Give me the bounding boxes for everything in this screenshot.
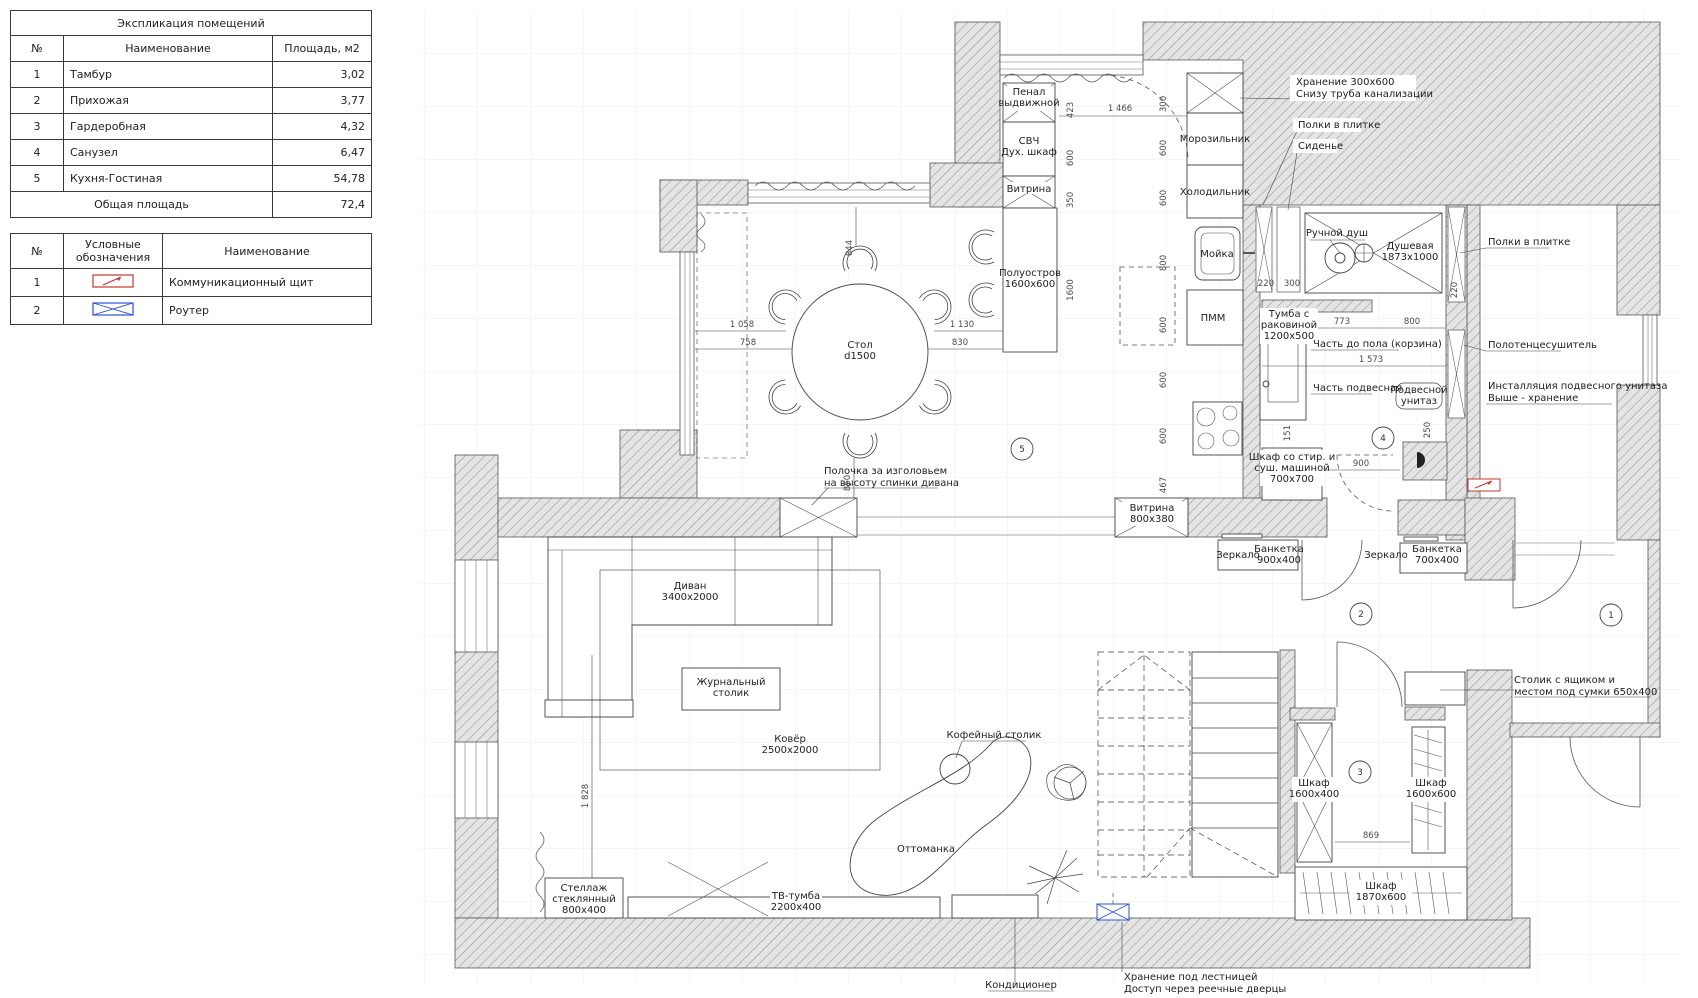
- label-coffee-table: Кофейный столик: [947, 730, 1042, 741]
- label-bench-900: 900х400: [1257, 555, 1301, 566]
- label-entry-table: Столик с ящиком и: [1514, 675, 1615, 686]
- label-microwave: СВЧ: [1019, 136, 1040, 147]
- dim: 800: [1404, 317, 1420, 327]
- label-wardrobe-1600x400: 1600х400: [1289, 789, 1339, 800]
- label-wardrobe-1870: Шкаф: [1365, 881, 1396, 892]
- wall-bottom: [455, 918, 1530, 968]
- label-pullout: выдвижной: [998, 98, 1059, 109]
- label-dining-table: Стол: [847, 340, 872, 351]
- label-ottoman: Оттоманка: [897, 844, 955, 855]
- dim: 151: [1283, 425, 1293, 441]
- wall: [1510, 723, 1660, 737]
- dim: 467: [1159, 477, 1169, 493]
- room-number: 1: [1608, 611, 1614, 621]
- dim: 220: [1258, 279, 1274, 289]
- label-shower: 1873х1000: [1382, 252, 1439, 263]
- label-rug: 2500х2000: [762, 745, 819, 756]
- dim: 900: [1353, 459, 1369, 469]
- dim: 758: [740, 338, 756, 348]
- drain: [1325, 243, 1355, 273]
- label-vitrina-small: Витрина: [1007, 184, 1052, 195]
- dim: 800: [1159, 255, 1169, 271]
- label-mirror: Зеркало: [1364, 550, 1408, 561]
- room-number: 4: [1380, 434, 1386, 444]
- label-bench-700: Банкетка: [1412, 544, 1462, 555]
- label-tile-shelves-top: Полки в плитке: [1298, 120, 1380, 131]
- wall: [1290, 708, 1335, 720]
- sofa-armrest: [545, 700, 633, 717]
- wall: [498, 498, 780, 537]
- label-understairs: Доступ через реечные дверцы: [1124, 984, 1286, 995]
- mirror-symbol: [1222, 534, 1262, 538]
- dim: 1600: [1066, 279, 1076, 301]
- dim: 773: [1334, 317, 1350, 327]
- wall: [1648, 540, 1660, 737]
- floor-plan-drawing: 5 2 1 3 4 Пенал выдвижной СВЧ Дух. шкаф …: [0, 0, 1698, 998]
- label-part-hung: Часть подвесная: [1313, 383, 1402, 394]
- label-installation: Инсталляция подвесного унитаза: [1488, 381, 1667, 392]
- label-journal-table: Журнальный: [697, 677, 766, 688]
- label-vanity: 1200х500: [1264, 331, 1314, 342]
- label-freezer: Морозильник: [1180, 134, 1250, 145]
- label-vanity: Тумба с: [1268, 309, 1310, 320]
- label-journal-table: столик: [713, 688, 749, 699]
- window: [680, 252, 694, 455]
- dim: 600: [1159, 140, 1169, 156]
- label-vanity: раковиной: [1261, 320, 1317, 331]
- dim: 220: [1450, 282, 1460, 298]
- wall: [1617, 205, 1660, 315]
- label-bench-700: 700х400: [1415, 555, 1459, 566]
- wall: [1403, 442, 1447, 480]
- label-fridge: Холодильник: [1180, 187, 1250, 198]
- wall: [1617, 385, 1660, 540]
- dim: 1 828: [581, 784, 591, 808]
- label-rug: Ковёр: [774, 734, 806, 745]
- wall: [660, 180, 697, 252]
- window: [1000, 55, 1143, 75]
- label-wardrobe-1600x600: Шкаф: [1415, 778, 1446, 789]
- dim: 250: [1423, 422, 1433, 438]
- label-entry-table: местом под сумки 650х400: [1514, 687, 1657, 698]
- label-storage300: Снизу труба канализации: [1296, 89, 1433, 100]
- label-tv-stand: 2200х400: [771, 902, 821, 913]
- label-tv-stand: ТВ-тумба: [771, 891, 820, 902]
- dim: 869: [1363, 831, 1379, 841]
- kitchen-cabinets: [1003, 83, 1057, 352]
- dim: 600: [1159, 428, 1169, 444]
- dim: 600: [1159, 372, 1169, 388]
- label-wc: Подвесной: [1390, 385, 1447, 396]
- room-number: 3: [1357, 768, 1363, 778]
- dim: 600: [1159, 317, 1169, 333]
- room-number: 2: [1358, 610, 1364, 620]
- label-dishwasher: ПММ: [1201, 313, 1226, 324]
- dim: 1 058: [730, 320, 754, 330]
- label-washer: суш. машиной: [1254, 463, 1329, 474]
- label-glass-shelf: Стеллаж: [561, 883, 608, 894]
- dim: 423: [1066, 102, 1076, 118]
- label-bench-900: Банкетка: [1254, 544, 1304, 555]
- dim: 300: [1159, 96, 1169, 112]
- comm-panel-icon: [1468, 479, 1500, 491]
- label-glass-shelf: стеклянный: [552, 894, 615, 905]
- label-glass-shelf: 800х400: [562, 905, 606, 916]
- dim: 300: [1284, 279, 1300, 289]
- label-dining-table: d1500: [844, 351, 876, 362]
- label-sofa: 3400х2000: [662, 592, 719, 603]
- mirror-symbol: [1404, 537, 1438, 541]
- wall: [930, 163, 1003, 207]
- wall: [1280, 650, 1295, 873]
- label-understairs: Хранение под лестницей: [1124, 972, 1258, 983]
- label-seat: Сиденье: [1298, 141, 1343, 152]
- label-storage300: Хранение 300х600: [1296, 77, 1394, 88]
- label-wardrobe-1870: 1870х600: [1356, 892, 1406, 903]
- dim: 830: [952, 338, 968, 348]
- label-hand-shower: Ручной душ: [1306, 228, 1368, 239]
- label-ac: Кондиционер: [985, 980, 1057, 991]
- room-number: 5: [1019, 445, 1025, 455]
- stair-flight: [1192, 652, 1278, 877]
- wall: [1188, 498, 1327, 537]
- dim: 844: [845, 240, 855, 256]
- dim: 850: [843, 475, 853, 491]
- floor-plan-sheet: Экспликация помещений № Наименование Пло…: [0, 0, 1698, 998]
- entry-table: [1405, 672, 1465, 705]
- wall: [1467, 670, 1512, 920]
- label-microwave: Дух. шкаф: [1001, 147, 1057, 158]
- dim: 1 573: [1359, 355, 1383, 365]
- ac-unit: [952, 895, 1038, 918]
- label-part-floor: Часть до пола (корзина): [1313, 339, 1442, 350]
- dim: 600: [1159, 190, 1169, 206]
- wall-left: [455, 455, 498, 918]
- wall: [1405, 707, 1445, 720]
- dim: 1 466: [1108, 104, 1132, 114]
- label-washer: Шкаф со стир. и: [1249, 452, 1335, 463]
- wall: [1398, 500, 1465, 535]
- dim: 1 130: [950, 320, 974, 330]
- label-vitrina-800: 800х380: [1130, 514, 1174, 525]
- label-wardrobe-1600x600: 1600х600: [1406, 789, 1456, 800]
- label-washer: 700х700: [1270, 474, 1314, 485]
- window: [455, 742, 498, 818]
- dim: 600: [1066, 150, 1076, 166]
- wall: [1465, 498, 1515, 580]
- dim: 350: [1066, 192, 1076, 208]
- label-island: Полуостров: [999, 268, 1061, 279]
- label-shower: Душевая: [1386, 241, 1433, 252]
- window: [1643, 315, 1657, 385]
- label-vitrina-800: Витрина: [1130, 503, 1175, 514]
- label-pullout: Пенал: [1013, 87, 1046, 98]
- label-wardrobe-1600x400: Шкаф: [1298, 778, 1329, 789]
- window: [455, 560, 498, 652]
- label-sink: Мойка: [1200, 249, 1233, 260]
- label-wc: унитаз: [1401, 396, 1437, 407]
- label-island: 1600х600: [1005, 279, 1055, 290]
- label-towel-dryer: Полотенцесушитель: [1488, 340, 1597, 351]
- label-tile-shelves-right: Полки в плитке: [1488, 237, 1570, 248]
- label-sofa: Диван: [674, 581, 707, 592]
- window: [748, 183, 930, 203]
- label-installation: Выше - хранение: [1488, 393, 1578, 404]
